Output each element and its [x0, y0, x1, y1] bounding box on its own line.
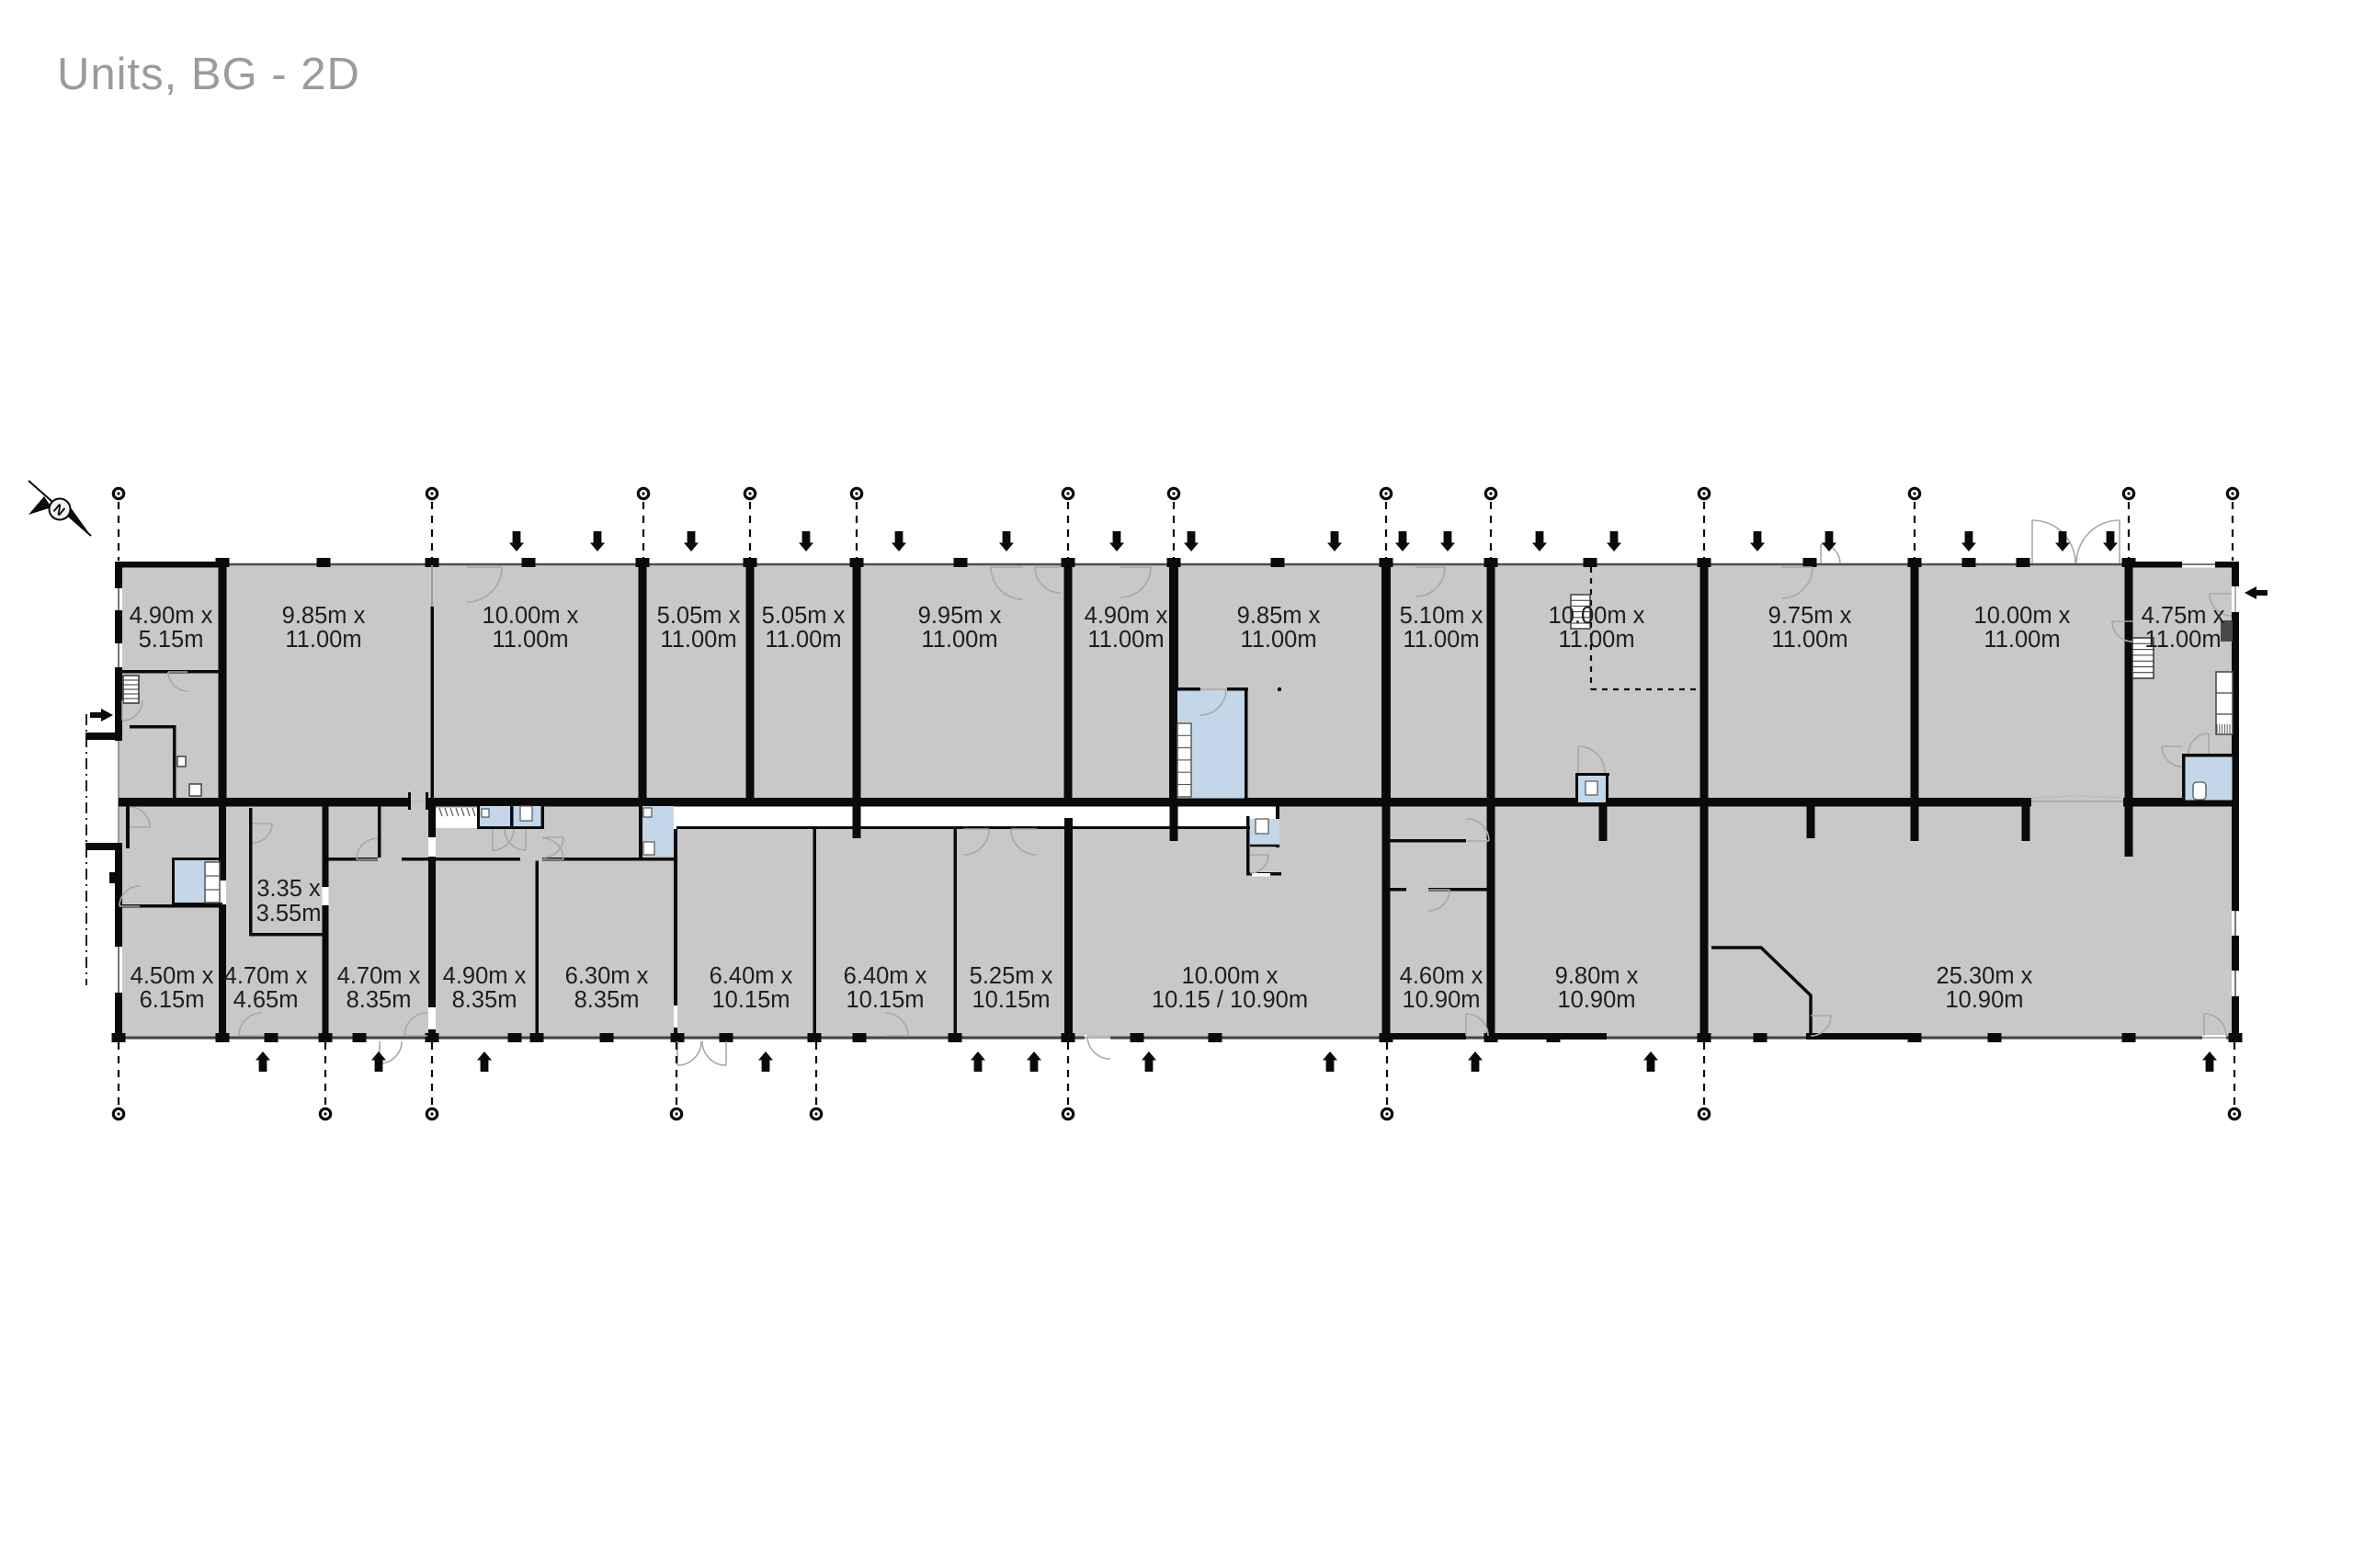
svg-text:4.65m: 4.65m — [233, 987, 299, 1013]
svg-text:8.35m: 8.35m — [574, 987, 640, 1013]
svg-text:4.90m x: 4.90m x — [130, 603, 213, 629]
svg-text:10.15m: 10.15m — [711, 987, 790, 1013]
svg-text:4.90m x: 4.90m x — [1085, 603, 1168, 629]
svg-text:4.75m x: 4.75m x — [2142, 603, 2225, 629]
svg-text:3.55m: 3.55m — [256, 901, 322, 926]
svg-text:5.10m x: 5.10m x — [1400, 603, 1483, 629]
svg-text:11.00m: 11.00m — [1984, 627, 2060, 653]
svg-text:8.35m: 8.35m — [452, 987, 517, 1013]
svg-text:9.95m x: 9.95m x — [918, 603, 1002, 629]
svg-text:11.00m: 11.00m — [921, 627, 997, 653]
svg-text:10.90m: 10.90m — [1402, 987, 1480, 1013]
svg-text:4.90m x: 4.90m x — [443, 963, 527, 989]
svg-text:25.30m x: 25.30m x — [1937, 963, 2033, 989]
svg-text:10.00m x: 10.00m x — [1182, 963, 1279, 989]
svg-text:6.40m x: 6.40m x — [844, 963, 927, 989]
svg-text:Units, BG - 2D: Units, BG - 2D — [57, 50, 360, 99]
svg-text:10.00m x: 10.00m x — [1974, 603, 2071, 629]
svg-text:5.05m x: 5.05m x — [762, 603, 846, 629]
svg-text:11.00m: 11.00m — [1240, 627, 1316, 653]
svg-text:8.35m: 8.35m — [347, 987, 412, 1013]
svg-text:11.00m: 11.00m — [285, 627, 361, 653]
svg-text:9.85m x: 9.85m x — [1237, 603, 1321, 629]
svg-text:11.00m: 11.00m — [1771, 627, 1847, 653]
svg-text:5.15m: 5.15m — [139, 627, 204, 653]
svg-text:11.00m: 11.00m — [2144, 627, 2221, 653]
svg-text:10.00m x: 10.00m x — [483, 603, 579, 629]
svg-text:9.80m x: 9.80m x — [1555, 963, 1639, 989]
svg-text:11.00m: 11.00m — [765, 627, 841, 653]
svg-text:10.90m: 10.90m — [1945, 987, 2023, 1013]
svg-text:5.25m x: 5.25m x — [970, 963, 1053, 989]
svg-text:6.40m x: 6.40m x — [710, 963, 793, 989]
svg-text:6.15m: 6.15m — [140, 987, 205, 1013]
svg-text:11.00m: 11.00m — [1403, 627, 1479, 653]
svg-text:11.00m: 11.00m — [1087, 627, 1164, 653]
svg-text:10.15 / 10.90m: 10.15 / 10.90m — [1152, 987, 1308, 1013]
svg-text:10.90m: 10.90m — [1557, 987, 1635, 1013]
svg-text:6.30m x: 6.30m x — [565, 963, 649, 989]
svg-text:11.00m: 11.00m — [492, 627, 568, 653]
svg-text:11.00m: 11.00m — [1558, 627, 1634, 653]
svg-text:10.15m: 10.15m — [972, 987, 1050, 1013]
svg-text:3.35 x: 3.35 x — [256, 876, 321, 902]
svg-text:10.00m x: 10.00m x — [1549, 603, 1645, 629]
svg-text:5.05m x: 5.05m x — [657, 603, 741, 629]
svg-text:9.75m x: 9.75m x — [1768, 603, 1852, 629]
svg-text:4.60m x: 4.60m x — [1400, 963, 1483, 989]
svg-text:4.50m x: 4.50m x — [131, 963, 214, 989]
svg-text:11.00m: 11.00m — [660, 627, 736, 653]
svg-text:9.85m x: 9.85m x — [282, 603, 366, 629]
svg-text:4.70m x: 4.70m x — [337, 963, 421, 989]
svg-text:10.15m: 10.15m — [846, 987, 924, 1013]
svg-text:4.70m x: 4.70m x — [224, 963, 308, 989]
